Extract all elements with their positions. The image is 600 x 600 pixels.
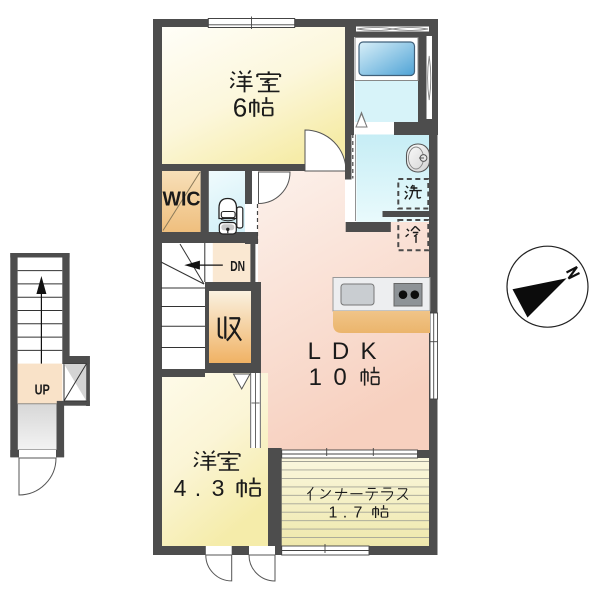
svg-text:1: 1 bbox=[309, 364, 322, 391]
svg-text:1: 1 bbox=[329, 504, 338, 521]
svg-text:3: 3 bbox=[212, 475, 225, 501]
svg-text:6: 6 bbox=[233, 92, 247, 122]
svg-text:0: 0 bbox=[333, 364, 346, 391]
svg-text:L: L bbox=[308, 338, 321, 365]
svg-text:.: . bbox=[195, 475, 201, 501]
svg-text:4: 4 bbox=[174, 475, 187, 501]
svg-text:.: . bbox=[343, 504, 347, 521]
svg-text:WIC: WIC bbox=[163, 188, 201, 210]
svg-text:UP: UP bbox=[35, 381, 50, 398]
svg-text:K: K bbox=[360, 338, 376, 365]
svg-text:DN: DN bbox=[230, 258, 245, 275]
svg-text:7: 7 bbox=[354, 504, 363, 521]
svg-text:D: D bbox=[332, 338, 349, 365]
